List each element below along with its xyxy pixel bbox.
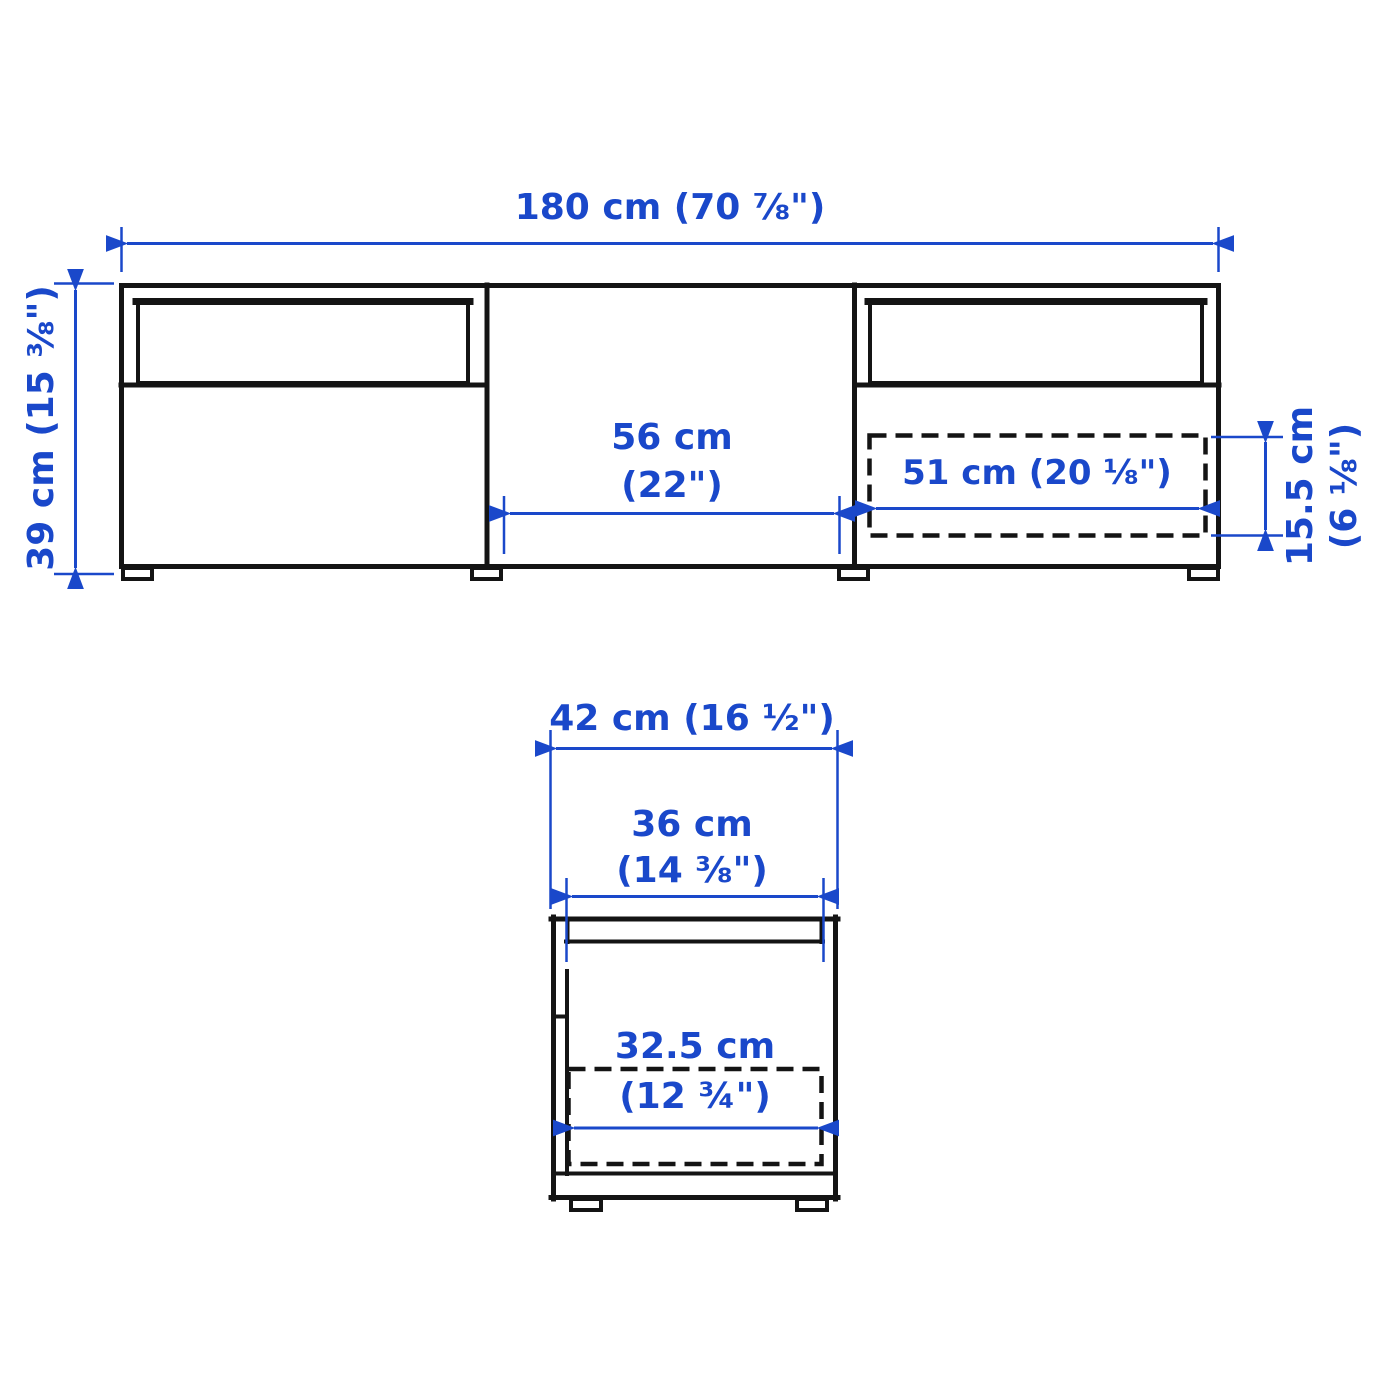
overall-height-label: 39 cm (15 ⅜") [21, 285, 62, 571]
dimension-diagram: 180 cm (70 ⅞") 39 cm (15 ⅜") 56 cm (22")… [0, 0, 1400, 1400]
drawer-height-label-value: 15.5 cm [1280, 406, 1321, 566]
front-foot-1 [123, 568, 152, 579]
drawer-depth-label-value: 32.5 cm [615, 1026, 775, 1067]
dim-drawer-depth: 32.5 cm (12 ¾") [574, 1026, 818, 1128]
drawer-width-label: 51 cm (20 ⅛") [902, 453, 1172, 493]
front-view: 180 cm (70 ⅞") 39 cm (15 ⅜") 56 cm (22")… [21, 187, 1365, 579]
dim-overall-width: 180 cm (70 ⅞") [122, 187, 1219, 272]
diagram-canvas: 180 cm (70 ⅞") 39 cm (15 ⅜") 56 cm (22")… [0, 0, 1400, 1400]
front-foot-2 [472, 568, 501, 579]
side-foot-front [571, 1199, 601, 1210]
dim-inner-depth: 36 cm (14 ⅜") [567, 804, 824, 962]
side-foot-back [797, 1199, 827, 1210]
inner-depth-label-inches: (14 ⅜") [616, 850, 768, 891]
front-foot-3 [839, 568, 868, 579]
middle-width-label-value: 56 cm [611, 417, 732, 458]
front-left-shelf-inset [138, 301, 468, 383]
dim-middle-width: 56 cm (22") [504, 417, 840, 554]
middle-width-label-inches: (22") [621, 465, 723, 506]
inner-depth-label-value: 36 cm [631, 804, 752, 845]
front-foot-4 [1189, 568, 1218, 579]
dim-drawer-width: 51 cm (20 ⅛") [876, 453, 1199, 509]
front-right-shelf-inset [870, 301, 1202, 383]
overall-depth-label: 42 cm (16 ½") [549, 698, 835, 739]
drawer-depth-label-inches: (12 ¾") [619, 1076, 771, 1117]
dim-overall-height: 39 cm (15 ⅜") [21, 284, 114, 575]
drawer-height-label-inches: (6 ⅛") [1324, 423, 1365, 550]
side-view: 42 cm (16 ½") 36 cm (14 ⅜") 32.5 cm (12 … [549, 698, 838, 1210]
overall-width-label: 180 cm (70 ⅞") [515, 187, 826, 228]
dim-drawer-height: 15.5 cm (6 ⅛") [1211, 406, 1365, 566]
